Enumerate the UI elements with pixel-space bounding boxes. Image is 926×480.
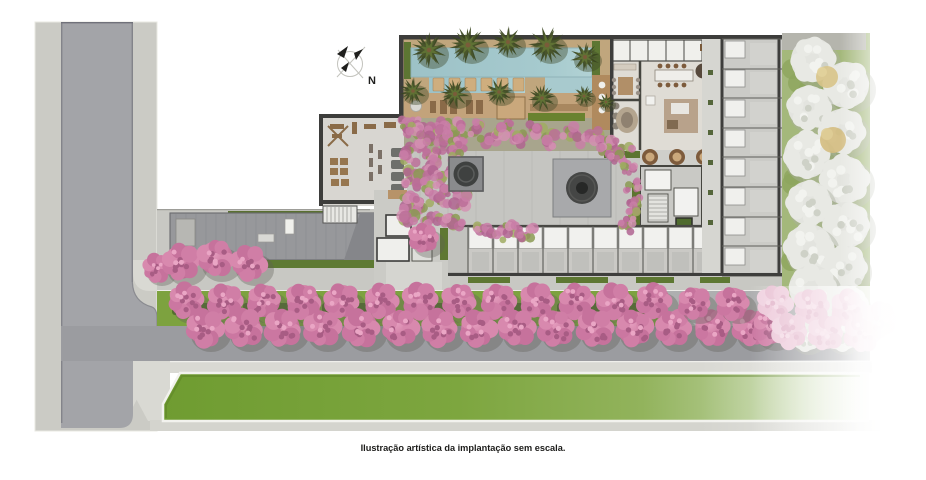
svg-text:Ilustração artística da implan: Ilustração artística da implantação sem … (361, 443, 566, 453)
svg-text:N: N (368, 75, 376, 87)
